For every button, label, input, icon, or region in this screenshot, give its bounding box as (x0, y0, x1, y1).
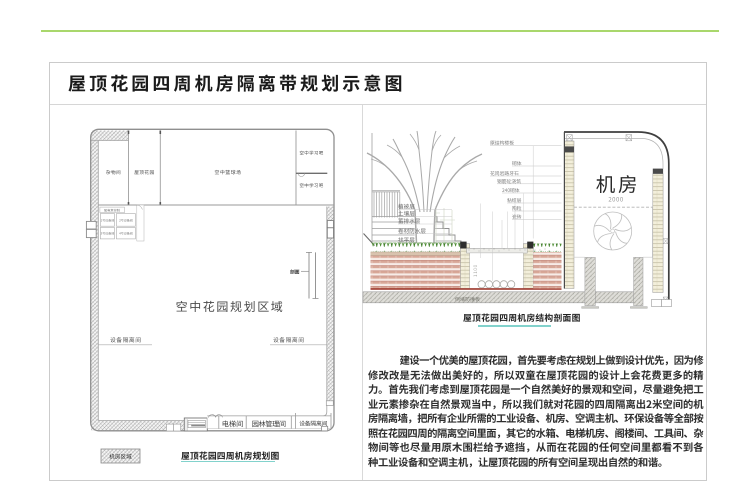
svg-text:空中篮球场: 空中篮球场 (215, 169, 242, 176)
svg-text:设备隔离间: 设备隔离间 (273, 335, 305, 344)
svg-text:机房区域: 机房区域 (109, 453, 132, 461)
svg-text:园林管理间: 园林管理间 (252, 420, 286, 430)
svg-text:电梯间: 电梯间 (222, 420, 244, 430)
svg-text:3号设备间: 3号设备间 (101, 232, 115, 236)
svg-text:侧墙防撞板: 侧墙防撞板 (455, 296, 480, 303)
svg-text:2号设备间: 2号设备间 (119, 218, 133, 222)
svg-text:空中花园规划区域: 空中花园规划区域 (176, 298, 285, 315)
svg-text:剖面: 剖面 (290, 269, 300, 276)
svg-text:4号设备间: 4号设备间 (119, 232, 133, 236)
svg-text:配电室控制: 配电室控制 (104, 208, 120, 213)
svg-text:1100: 1100 (473, 264, 479, 277)
svg-text:设备隔离间: 设备隔离间 (110, 335, 142, 344)
svg-text:空中学习吧: 空中学习吧 (300, 183, 324, 189)
svg-text:空中学习吧: 空中学习吧 (300, 151, 324, 157)
svg-text:2000: 2000 (608, 195, 623, 204)
svg-text:机房: 机房 (596, 169, 641, 198)
svg-text:屋顶花园: 屋顶花园 (134, 170, 154, 176)
svg-text:1号设备间: 1号设备间 (101, 218, 115, 222)
svg-text:杂物间: 杂物间 (106, 170, 121, 176)
